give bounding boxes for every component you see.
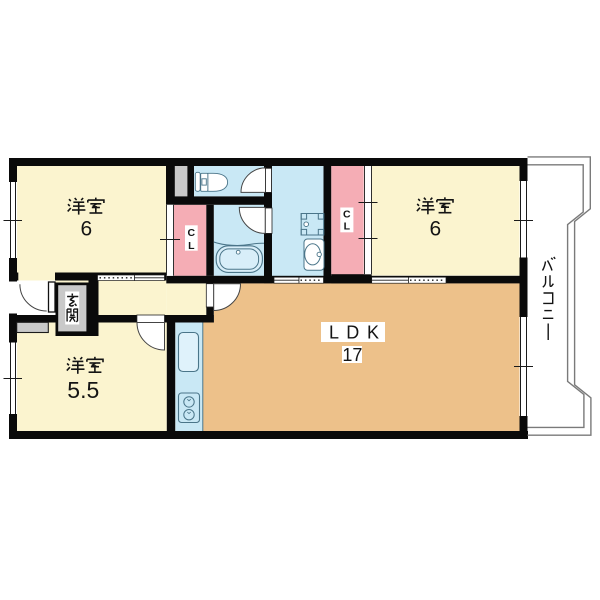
svg-text:D: D [346,323,359,343]
svg-text:C: C [188,227,196,239]
svg-text:L: L [344,220,351,232]
svg-text:K: K [367,323,379,343]
svg-text:L: L [329,323,339,343]
svg-text:17: 17 [342,345,362,365]
svg-text:6: 6 [429,217,441,240]
svg-text:C: C [343,208,351,220]
svg-text:6: 6 [80,217,92,240]
svg-text:L: L [188,240,195,252]
svg-text:5.5: 5.5 [67,377,99,403]
